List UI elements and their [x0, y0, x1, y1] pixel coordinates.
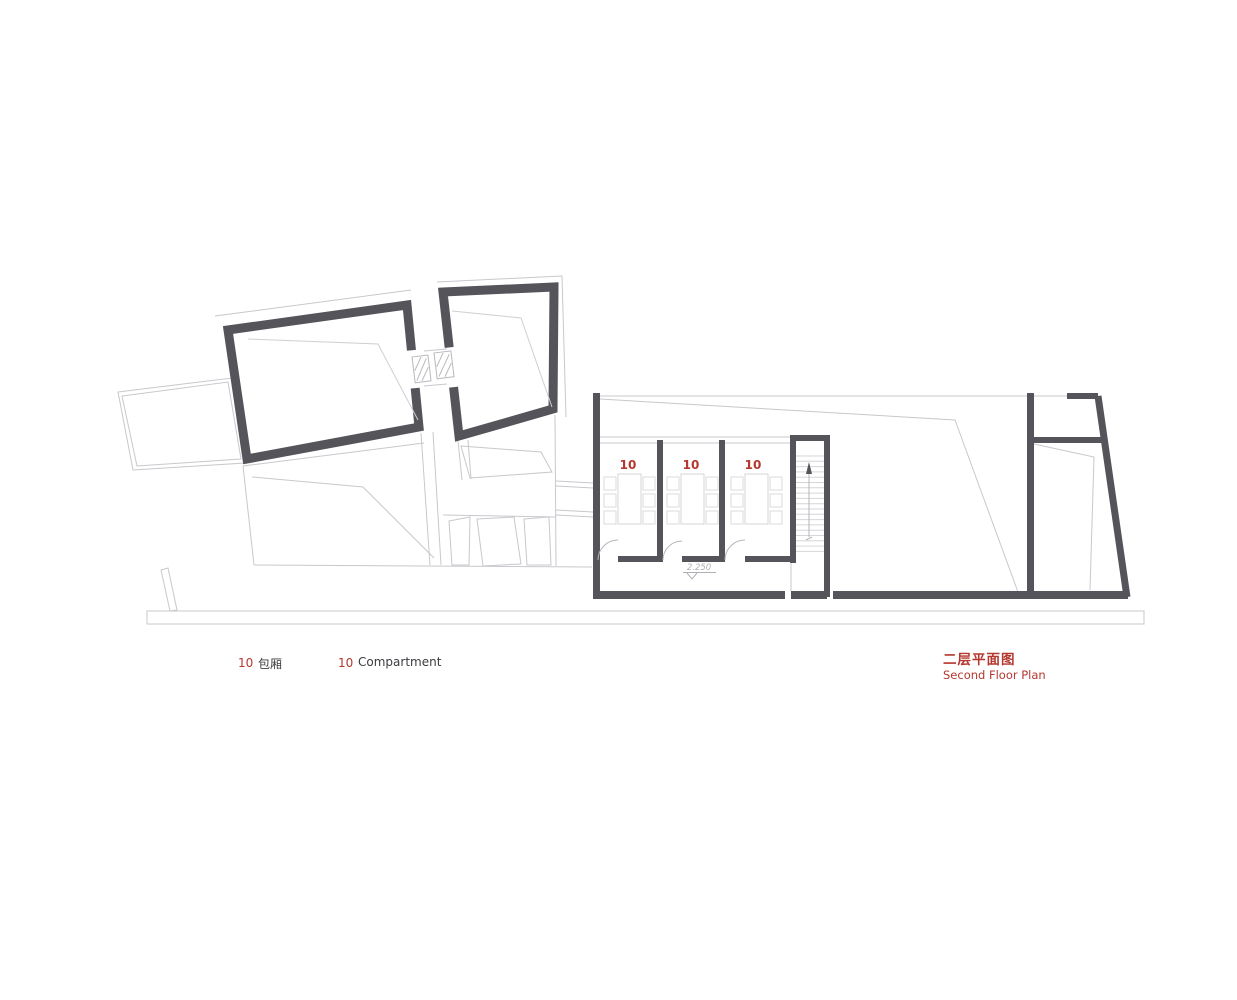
right-building: 10 10 10 2.250 [593, 393, 1128, 599]
partition-2 [719, 440, 725, 562]
door-swing-arc [725, 540, 745, 560]
level-marker: 2.250 [683, 563, 716, 579]
connector-bridge [404, 346, 464, 389]
door-swing-arc [598, 540, 618, 560]
ramp-outline [161, 568, 177, 611]
stair-west-wall [790, 435, 796, 563]
east-room-line [1034, 444, 1094, 590]
compartment-label: 10 [620, 458, 637, 472]
terrace-inner [122, 382, 241, 466]
stair-east-wall [824, 435, 830, 597]
drawing-sheet: { "drawing": { "name": "floor-plan", "co… [0, 0, 1237, 1000]
west-wall [593, 393, 600, 598]
compartment-label: 10 [683, 458, 700, 472]
ground-band [147, 611, 1144, 624]
terrace-outer [118, 378, 245, 470]
level-arrow-icon [687, 573, 697, 579]
floor-plan-canvas: 10 10 10 2.250 [0, 0, 1237, 1000]
door-swing-arc [663, 541, 682, 560]
bridge-upper [556, 481, 593, 488]
level-value: 2.250 [687, 563, 711, 573]
door-panel-hatch [434, 351, 454, 379]
room-a [228, 305, 419, 459]
compartment-1 [604, 474, 655, 524]
compartment-label: 10 [745, 458, 762, 472]
door-panel-hatch [412, 355, 431, 383]
bridge-lower [556, 510, 593, 517]
room-a-walls [228, 305, 419, 459]
compartment-2 [667, 474, 718, 524]
south-wall [593, 591, 785, 599]
stair [796, 456, 824, 551]
partition-1 [657, 440, 663, 562]
compartment-3 [731, 474, 782, 524]
slanted-east-wall [1098, 396, 1127, 597]
compartment-glazing [600, 437, 790, 443]
east-core-wall [1027, 393, 1034, 598]
stair-direction-arrow-icon [806, 462, 812, 540]
